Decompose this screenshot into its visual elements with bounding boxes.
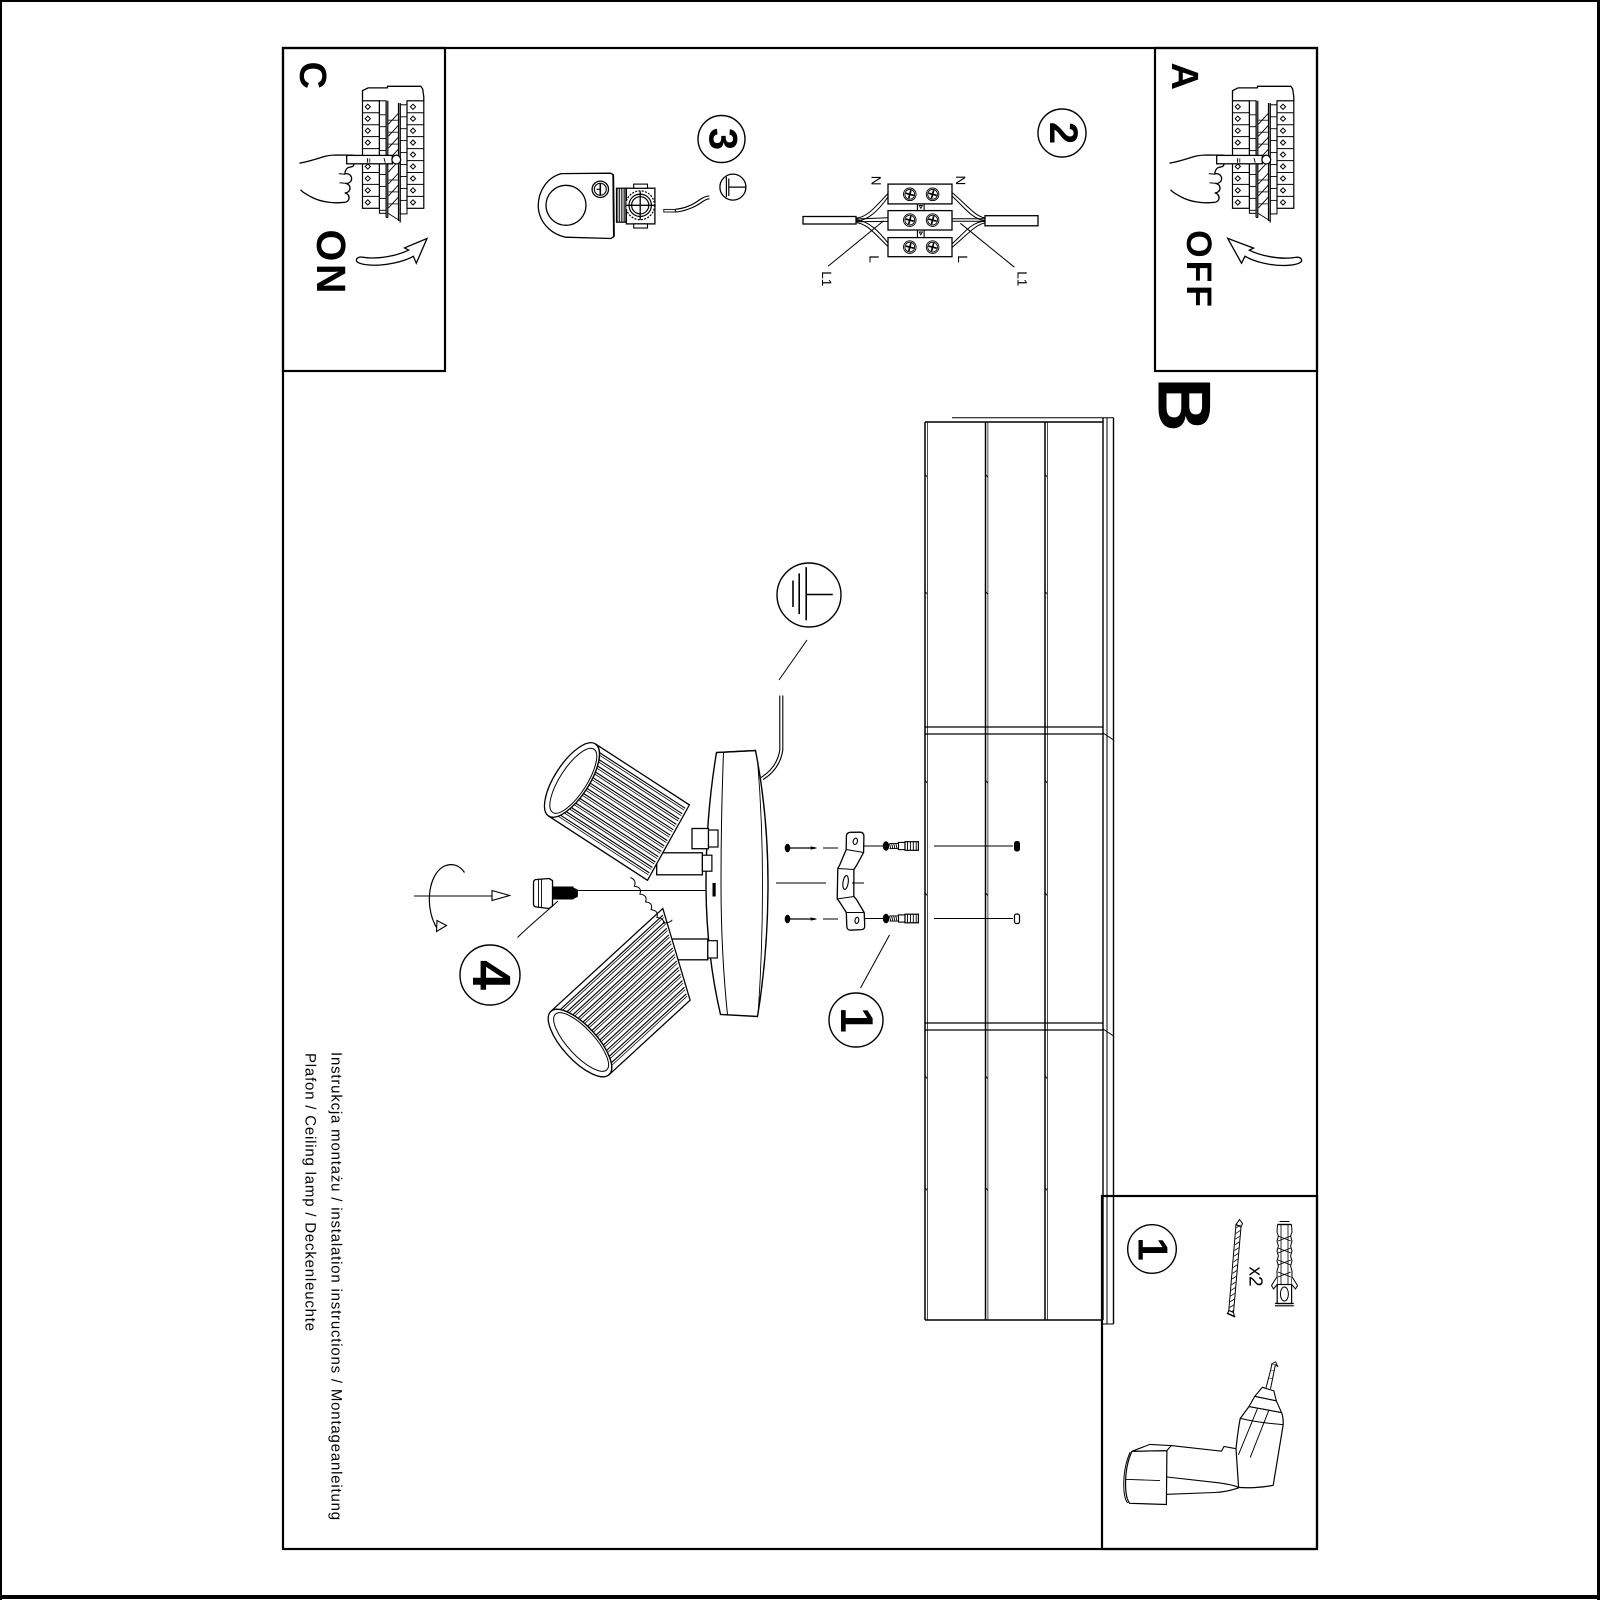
svg-text:L: L [955, 255, 970, 263]
svg-text:x2: x2 [1245, 1267, 1266, 1287]
svg-text:L: L [867, 255, 882, 263]
svg-text:N: N [869, 176, 884, 186]
svg-text:Plafon / Ceiling lamp / Decken: Plafon / Ceiling lamp / Deckenleuchte [302, 1053, 319, 1332]
svg-text:B: B [1143, 378, 1227, 432]
svg-text:3: 3 [701, 128, 745, 150]
svg-text:C: C [291, 62, 333, 89]
svg-text:1: 1 [831, 1007, 883, 1033]
svg-text:4: 4 [461, 960, 521, 990]
svg-text:1: 1 [1130, 1237, 1177, 1260]
svg-text:ON: ON [308, 230, 354, 297]
svg-text:Instrukcja montażu / instalati: Instrukcja montażu / instalation instruc… [328, 1052, 345, 1521]
svg-text:A: A [1163, 63, 1205, 90]
svg-text:N: N [953, 176, 968, 186]
svg-text:L1: L1 [1015, 271, 1030, 286]
svg-text:OFF: OFF [1179, 230, 1219, 310]
svg-text:L1: L1 [819, 271, 834, 286]
svg-text:2: 2 [1041, 122, 1085, 144]
